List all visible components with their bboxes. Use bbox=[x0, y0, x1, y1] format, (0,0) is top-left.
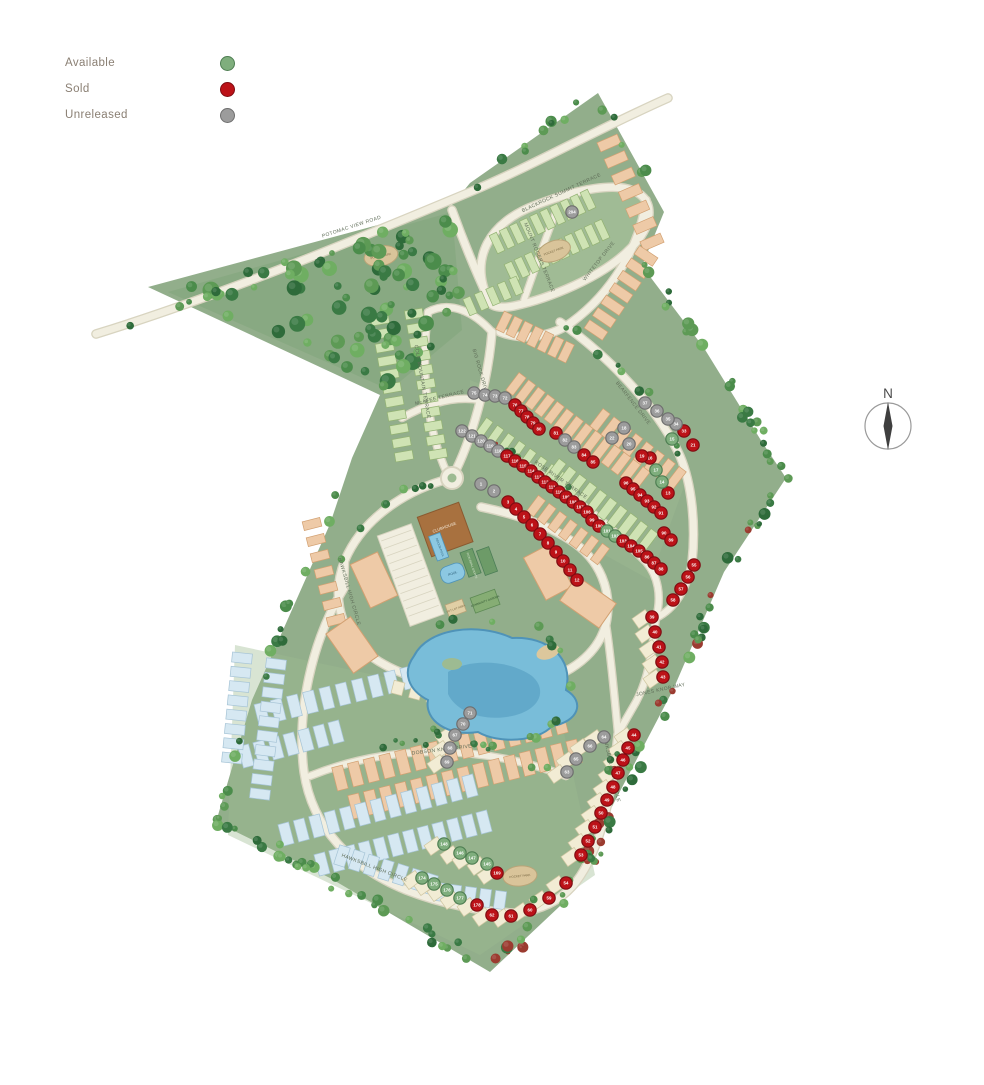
house bbox=[224, 723, 245, 735]
lot-marker[interactable]: 91 bbox=[655, 507, 667, 519]
lot-marker[interactable]: 45 bbox=[622, 742, 634, 754]
svg-text:43: 43 bbox=[661, 675, 666, 680]
lot-marker[interactable]: 14 bbox=[656, 476, 668, 488]
house bbox=[493, 890, 506, 909]
site-plan-map[interactable]: CLUBHOUSEINDOOR POOLPOOLPICKLEBALL COURT… bbox=[0, 0, 984, 1080]
unreleased-status-dot bbox=[220, 108, 235, 123]
lot-marker[interactable]: 36 bbox=[651, 405, 663, 417]
lot-marker[interactable]: 48 bbox=[607, 781, 619, 793]
svg-text:61: 61 bbox=[509, 914, 514, 919]
lot-marker[interactable]: 58 bbox=[667, 594, 679, 606]
svg-text:169: 169 bbox=[493, 871, 501, 876]
house bbox=[226, 709, 247, 721]
svg-text:21: 21 bbox=[691, 443, 696, 448]
house bbox=[260, 701, 281, 713]
lot-marker[interactable]: 59 bbox=[543, 892, 555, 904]
svg-text:176: 176 bbox=[443, 888, 451, 893]
lot-marker[interactable]: 43 bbox=[657, 671, 669, 683]
svg-text:12: 12 bbox=[575, 578, 580, 583]
lot-marker[interactable]: 146 bbox=[454, 847, 466, 859]
svg-text:54: 54 bbox=[564, 881, 569, 886]
svg-text:62: 62 bbox=[490, 913, 495, 918]
lot-marker[interactable]: 60 bbox=[524, 904, 536, 916]
lot-marker[interactable]: 42 bbox=[656, 656, 668, 668]
svg-text:83: 83 bbox=[572, 445, 577, 450]
svg-text:118: 118 bbox=[494, 449, 502, 454]
legend-row-sold: Sold bbox=[65, 76, 235, 102]
lot-marker[interactable]: 40 bbox=[649, 626, 661, 638]
svg-text:39: 39 bbox=[650, 615, 655, 620]
house bbox=[251, 773, 272, 785]
lot-marker[interactable]: 41 bbox=[653, 641, 665, 653]
lot-marker[interactable]: 17 bbox=[650, 464, 662, 476]
lot-marker[interactable]: 175 bbox=[428, 878, 440, 890]
svg-text:90: 90 bbox=[662, 531, 667, 536]
lot-marker[interactable]: 51 bbox=[589, 821, 601, 833]
sold-status-dot bbox=[220, 82, 235, 97]
house bbox=[230, 666, 251, 678]
lot-marker[interactable]: 55 bbox=[688, 559, 700, 571]
house bbox=[265, 658, 286, 670]
lot-marker[interactable]: 52 bbox=[582, 835, 594, 847]
house bbox=[258, 716, 279, 728]
compass: N bbox=[865, 386, 911, 450]
lot-marker[interactable]: 89 bbox=[665, 534, 677, 546]
svg-text:63: 63 bbox=[565, 770, 570, 775]
legend: Available Sold Unreleased bbox=[65, 50, 235, 128]
svg-text:60: 60 bbox=[528, 908, 533, 913]
lot-marker[interactable]: 20 bbox=[623, 438, 635, 450]
svg-text:19: 19 bbox=[640, 454, 645, 459]
svg-text:45: 45 bbox=[626, 746, 631, 751]
svg-text:178: 178 bbox=[473, 903, 481, 908]
lot-marker[interactable]: 22 bbox=[606, 432, 618, 444]
svg-text:15: 15 bbox=[670, 437, 675, 442]
lot-marker[interactable]: 145 bbox=[481, 858, 493, 870]
lot-marker[interactable]: 69 bbox=[441, 756, 453, 768]
svg-text:22: 22 bbox=[610, 436, 615, 441]
lot-marker[interactable]: 148 bbox=[438, 838, 450, 850]
svg-text:46: 46 bbox=[621, 758, 626, 763]
svg-text:82: 82 bbox=[563, 438, 568, 443]
lot-marker[interactable]: 63 bbox=[561, 766, 573, 778]
lot-marker[interactable]: 65 bbox=[570, 753, 582, 765]
lot-marker[interactable]: 147 bbox=[466, 852, 478, 864]
lot-marker[interactable]: 68 bbox=[444, 742, 456, 754]
lot-marker[interactable]: 176 bbox=[441, 884, 453, 896]
house bbox=[257, 730, 278, 742]
site-plan-svg[interactable]: CLUBHOUSEINDOOR POOLPOOLPICKLEBALL COURT… bbox=[0, 0, 984, 1080]
lot-marker[interactable]: 53 bbox=[575, 849, 587, 861]
legend-row-unreleased: Unreleased bbox=[65, 102, 235, 128]
svg-text:56: 56 bbox=[686, 575, 691, 580]
compass-n-label: N bbox=[883, 386, 893, 401]
lot-marker[interactable]: 19 bbox=[636, 450, 648, 462]
svg-text:49: 49 bbox=[605, 798, 610, 803]
lot-marker[interactable]: 85 bbox=[587, 456, 599, 468]
lot-marker[interactable]: 12 bbox=[571, 574, 583, 586]
lot-marker[interactable]: 174 bbox=[416, 872, 428, 884]
lot-marker[interactable]: 177 bbox=[454, 892, 466, 904]
svg-text:80: 80 bbox=[537, 427, 542, 432]
house bbox=[249, 788, 270, 800]
svg-text:35: 35 bbox=[666, 417, 671, 422]
svg-text:55: 55 bbox=[692, 563, 697, 568]
lot-marker[interactable]: 88 bbox=[655, 563, 667, 575]
lot-marker[interactable]: 47 bbox=[612, 767, 624, 779]
house bbox=[227, 695, 248, 707]
lot-marker[interactable]: 64 bbox=[598, 731, 610, 743]
svg-text:20: 20 bbox=[627, 442, 632, 447]
lot-marker[interactable]: 1 bbox=[475, 478, 487, 490]
lot-marker[interactable]: 49 bbox=[601, 794, 613, 806]
svg-text:122: 122 bbox=[458, 429, 466, 434]
lot-marker[interactable]: 70 bbox=[457, 718, 469, 730]
svg-text:66: 66 bbox=[588, 744, 593, 749]
legend-row-available: Available bbox=[65, 50, 235, 76]
svg-text:72: 72 bbox=[503, 396, 508, 401]
svg-text:51: 51 bbox=[593, 825, 598, 830]
svg-text:58: 58 bbox=[671, 598, 676, 603]
svg-text:33: 33 bbox=[682, 429, 687, 434]
svg-text:40: 40 bbox=[653, 630, 658, 635]
lot-marker[interactable]: 37 bbox=[639, 397, 651, 409]
svg-text:175: 175 bbox=[430, 882, 438, 887]
lot-marker[interactable]: 67 bbox=[449, 729, 461, 741]
lot-marker[interactable]: 15 bbox=[666, 433, 678, 445]
lot-marker[interactable]: 57 bbox=[675, 583, 687, 595]
lot-marker[interactable]: 204 bbox=[566, 206, 578, 218]
svg-text:65: 65 bbox=[574, 757, 579, 762]
svg-text:146: 146 bbox=[456, 851, 464, 856]
house bbox=[262, 687, 283, 699]
lot-marker[interactable]: 44 bbox=[628, 729, 640, 741]
svg-text:174: 174 bbox=[418, 876, 426, 881]
svg-text:37: 37 bbox=[643, 401, 648, 406]
svg-text:52: 52 bbox=[586, 839, 591, 844]
lot-marker[interactable]: 61 bbox=[505, 910, 517, 922]
lot-marker[interactable]: 50 bbox=[595, 807, 607, 819]
house bbox=[229, 681, 250, 693]
lot-marker[interactable]: 54 bbox=[560, 877, 572, 889]
svg-text:177: 177 bbox=[456, 896, 464, 901]
svg-text:68: 68 bbox=[448, 746, 453, 751]
svg-text:71: 71 bbox=[468, 711, 473, 716]
svg-text:147: 147 bbox=[468, 856, 476, 861]
house bbox=[253, 759, 274, 771]
house bbox=[232, 652, 253, 664]
lot-marker[interactable]: 62 bbox=[486, 909, 498, 921]
svg-text:59: 59 bbox=[547, 896, 552, 901]
lot-marker[interactable]: 2 bbox=[488, 485, 500, 497]
lot-marker[interactable]: 18 bbox=[618, 422, 630, 434]
compass-needle bbox=[884, 402, 893, 450]
lot-marker[interactable]: 66 bbox=[584, 740, 596, 752]
svg-text:67: 67 bbox=[453, 733, 458, 738]
svg-text:75: 75 bbox=[472, 391, 477, 396]
svg-text:73: 73 bbox=[493, 394, 498, 399]
svg-text:88: 88 bbox=[659, 567, 664, 572]
lot-marker[interactable]: 39 bbox=[646, 611, 658, 623]
lot-marker[interactable]: 178 bbox=[471, 899, 483, 911]
svg-text:85: 85 bbox=[591, 460, 596, 465]
lot-marker[interactable]: 169 bbox=[491, 867, 503, 879]
svg-text:44: 44 bbox=[632, 733, 637, 738]
svg-text:81: 81 bbox=[554, 431, 559, 436]
lot-marker[interactable]: 56 bbox=[682, 571, 694, 583]
svg-text:13: 13 bbox=[666, 491, 671, 496]
lot-marker[interactable]: 71 bbox=[464, 707, 476, 719]
available-status-dot bbox=[220, 56, 235, 71]
svg-text:57: 57 bbox=[679, 587, 684, 592]
svg-text:42: 42 bbox=[660, 660, 665, 665]
svg-text:91: 91 bbox=[659, 511, 664, 516]
svg-text:10: 10 bbox=[561, 559, 566, 564]
svg-text:145: 145 bbox=[483, 862, 491, 867]
svg-text:70: 70 bbox=[461, 722, 466, 727]
svg-text:47: 47 bbox=[616, 771, 621, 776]
svg-text:74: 74 bbox=[483, 393, 488, 398]
legend-label-available: Available bbox=[65, 57, 115, 69]
svg-text:36: 36 bbox=[655, 409, 660, 414]
svg-text:69: 69 bbox=[445, 760, 450, 765]
house bbox=[302, 517, 322, 530]
svg-text:18: 18 bbox=[622, 426, 627, 431]
svg-text:50: 50 bbox=[599, 811, 604, 816]
svg-text:11: 11 bbox=[568, 568, 573, 573]
svg-text:48: 48 bbox=[611, 785, 616, 790]
lot-marker[interactable]: 13 bbox=[662, 487, 674, 499]
legend-label-unreleased: Unreleased bbox=[65, 109, 128, 121]
svg-text:34: 34 bbox=[674, 422, 679, 427]
svg-text:204: 204 bbox=[568, 210, 576, 215]
house bbox=[255, 744, 276, 756]
svg-text:14: 14 bbox=[660, 480, 665, 485]
lot-marker[interactable]: 46 bbox=[617, 754, 629, 766]
lot-marker[interactable]: 35 bbox=[662, 413, 674, 425]
svg-text:17: 17 bbox=[654, 468, 659, 473]
svg-text:89: 89 bbox=[669, 538, 674, 543]
lot-marker[interactable]: 75 bbox=[468, 387, 480, 399]
svg-text:84: 84 bbox=[582, 453, 587, 458]
svg-text:53: 53 bbox=[579, 853, 584, 858]
legend-label-sold: Sold bbox=[65, 83, 90, 95]
lot-marker[interactable]: 21 bbox=[687, 439, 699, 451]
svg-text:64: 64 bbox=[602, 735, 607, 740]
lot-marker[interactable]: 80 bbox=[533, 423, 545, 435]
svg-text:148: 148 bbox=[440, 842, 448, 847]
svg-text:41: 41 bbox=[657, 645, 662, 650]
